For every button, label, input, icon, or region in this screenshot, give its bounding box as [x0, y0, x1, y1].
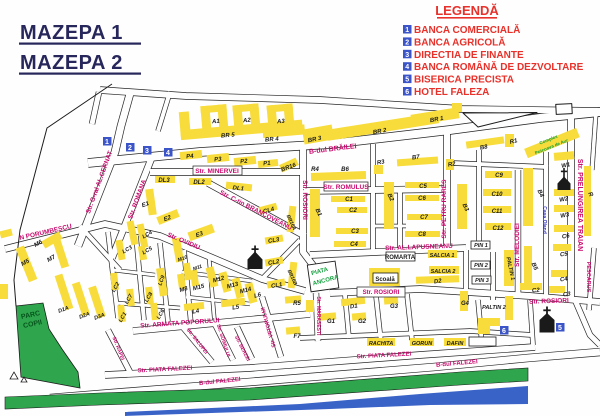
svg-text:2: 2 [128, 145, 132, 152]
svg-text:P4: P4 [186, 154, 195, 161]
svg-text:1: 1 [405, 27, 409, 34]
svg-text:B7: B7 [412, 154, 421, 161]
svg-text:Str. MINERVEI: Str. MINERVEI [195, 168, 239, 175]
svg-text:C2: C2 [532, 288, 541, 295]
svg-text:P2: P2 [240, 159, 249, 166]
svg-text:BR 5: BR 5 [221, 132, 236, 139]
svg-text:C5: C5 [419, 184, 427, 190]
svg-text:A2: A2 [242, 118, 252, 125]
svg-text:PESCARUS: PESCARUS [585, 262, 591, 293]
svg-text:4: 4 [405, 64, 409, 71]
svg-text:6: 6 [405, 89, 409, 96]
svg-text:C9: C9 [495, 173, 503, 179]
svg-text:C11: C11 [492, 209, 503, 215]
svg-text:5: 5 [558, 325, 562, 332]
svg-text:4: 4 [166, 150, 170, 157]
svg-text:G3: G3 [390, 304, 399, 310]
svg-text:PALTIN 2: PALTIN 2 [482, 305, 506, 311]
svg-text:RACHITA: RACHITA [369, 341, 393, 347]
svg-text:Casa Oland: Casa Oland [541, 206, 547, 234]
svg-text:BANCA AGRICOLĂ: BANCA AGRICOLĂ [414, 35, 505, 48]
svg-text:C3: C3 [351, 229, 359, 235]
svg-text:LEGENDĂ: LEGENDĂ [435, 3, 499, 18]
svg-text:A1: A1 [211, 119, 221, 126]
svg-text:B6: B6 [341, 167, 349, 173]
svg-text:R4: R4 [311, 167, 319, 173]
svg-text:C12: C12 [492, 226, 504, 232]
svg-text:BISERICA PRECISTA: BISERICA PRECISTA [414, 75, 514, 86]
svg-text:Str. MELODIEI: Str. MELODIEI [514, 223, 521, 267]
svg-text:Str. PRELUNGIREA TRAIAN: Str. PRELUNGIREA TRAIAN [576, 159, 583, 251]
svg-text:DL3: DL3 [158, 178, 170, 184]
svg-text:C4: C4 [350, 242, 358, 248]
svg-text:Str. PETRU RARES: Str. PETRU RARES [441, 179, 448, 239]
svg-text:ROMARTA: ROMARTA [385, 255, 416, 261]
svg-text:1: 1 [105, 139, 109, 146]
svg-text:PIN 2: PIN 2 [474, 263, 488, 269]
svg-text:C5: C5 [560, 251, 569, 258]
svg-text:G4: G4 [461, 301, 470, 307]
svg-text:Str. ROSIORI: Str. ROSIORI [301, 180, 308, 220]
svg-text:2: 2 [405, 39, 409, 46]
svg-text:F7: F7 [293, 334, 301, 340]
svg-text:P1: P1 [263, 161, 272, 168]
svg-text:DAFIN: DAFIN [447, 341, 465, 347]
svg-text:A3: A3 [276, 119, 286, 126]
svg-text:6: 6 [502, 328, 506, 335]
svg-text:C8: C8 [418, 232, 426, 238]
svg-text:R5: R5 [293, 301, 301, 307]
svg-text:MAZEPA 1: MAZEPA 1 [20, 22, 123, 44]
svg-text:P3: P3 [214, 157, 223, 164]
svg-text:MAZEPA 2: MAZEPA 2 [20, 52, 123, 74]
svg-text:SALCIA 2: SALCIA 2 [431, 269, 456, 275]
svg-text:BR 4: BR 4 [265, 136, 280, 143]
svg-text:C7: C7 [420, 215, 428, 221]
svg-text:C2: C2 [349, 208, 357, 214]
svg-text:Str. ROSIORI: Str. ROSIORI [363, 290, 400, 296]
svg-text:C4: C4 [560, 276, 569, 283]
svg-text:3: 3 [405, 52, 409, 59]
svg-text:Str. ROMULUS: Str. ROMULUS [323, 184, 369, 191]
svg-text:DL2: DL2 [193, 180, 205, 186]
svg-text:Str. ROSIORI: Str. ROSIORI [529, 297, 569, 305]
svg-text:5: 5 [405, 77, 409, 84]
svg-text:Str. MARASESTI: Str. MARASESTI [315, 297, 321, 337]
svg-text:Scoală: Scoală [375, 277, 395, 283]
svg-text:3: 3 [145, 148, 149, 155]
svg-text:D1: D1 [350, 303, 359, 310]
svg-text:D2: D2 [434, 278, 443, 285]
svg-text:C1: C1 [345, 197, 353, 203]
svg-text:C10: C10 [491, 192, 503, 198]
svg-text:GORUN: GORUN [412, 341, 434, 347]
svg-text:HOTEL FALEZA: HOTEL FALEZA [414, 87, 489, 98]
svg-text:BANCA ROMÂNĂ DE DEZVOLTARE: BANCA ROMÂNĂ DE DEZVOLTARE [414, 60, 584, 73]
svg-text:BANCA COMERCIALĂ: BANCA COMERCIALĂ [414, 23, 520, 36]
svg-text:G2: G2 [358, 319, 367, 325]
svg-text:PIN 1: PIN 1 [474, 243, 488, 249]
svg-text:DIRECTIA DE FINANTE: DIRECTIA DE FINANTE [414, 50, 524, 61]
svg-text:SALCIA 1: SALCIA 1 [430, 253, 455, 259]
svg-text:C6: C6 [418, 196, 426, 202]
svg-text:G1: G1 [327, 319, 336, 325]
svg-text:PIN 3: PIN 3 [475, 278, 489, 284]
svg-text:DL1: DL1 [232, 185, 245, 192]
